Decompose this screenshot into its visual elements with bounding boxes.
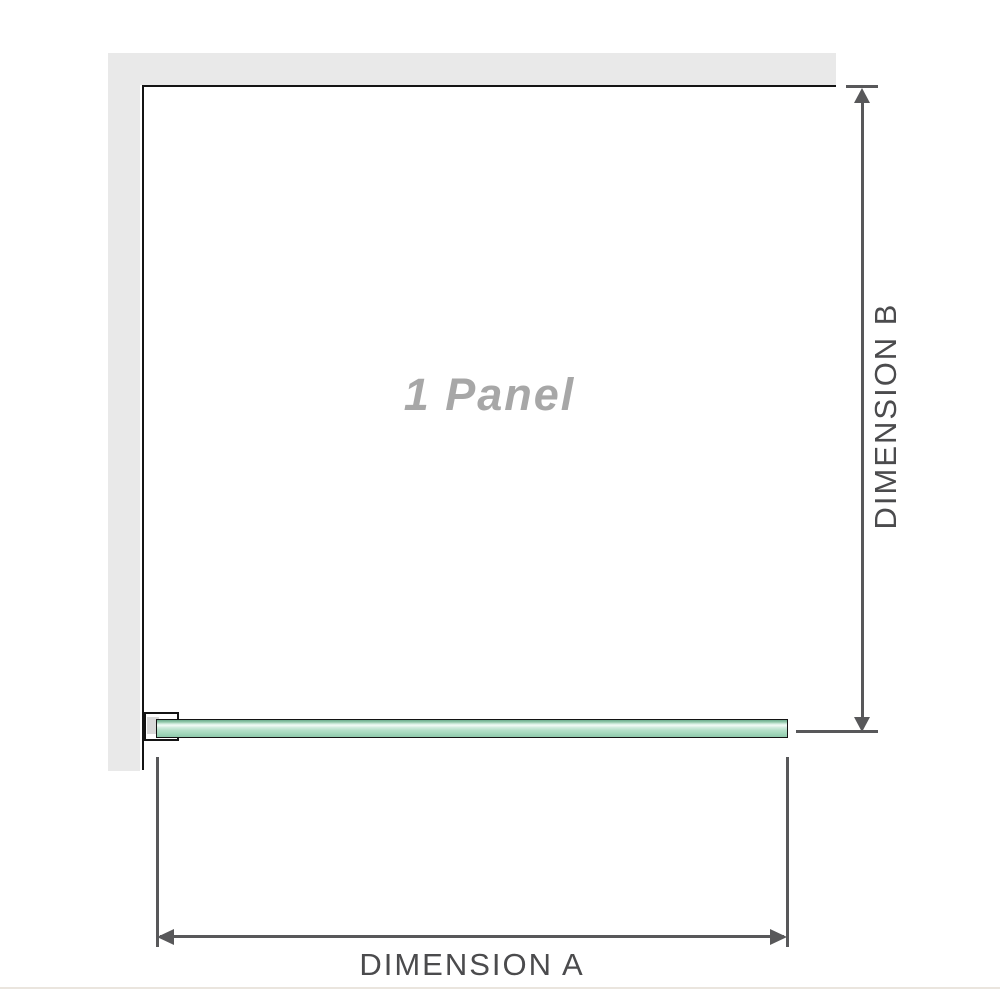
dimension-b-label: DIMENSION B	[868, 266, 904, 566]
panel-top-edge-line	[142, 85, 836, 87]
dimension-a-line	[160, 935, 784, 938]
wall-top-bar	[108, 53, 836, 85]
wall-left-bar	[108, 53, 140, 771]
dimension-a-arrow-left-icon	[157, 929, 174, 945]
panel-left-edge-line	[142, 85, 144, 770]
dimension-a-arrow-right-icon	[770, 929, 787, 945]
panel-dimension-diagram: 1 Panel DIMENSION B DIMENSION A	[0, 0, 1000, 1000]
dimension-a-right-extension-line	[786, 757, 789, 947]
dimension-b-line	[861, 96, 864, 719]
dimension-a-left-extension-line	[156, 757, 159, 947]
dimension-a-label: DIMENSION A	[157, 948, 787, 982]
panel-count-label: 1 Panel	[143, 370, 836, 420]
dimension-b-arrow-down-icon	[854, 717, 870, 732]
dimension-b-arrow-up-icon	[854, 88, 870, 103]
page-baseline-divider	[0, 987, 1000, 989]
glass-panel-bar	[156, 719, 788, 738]
